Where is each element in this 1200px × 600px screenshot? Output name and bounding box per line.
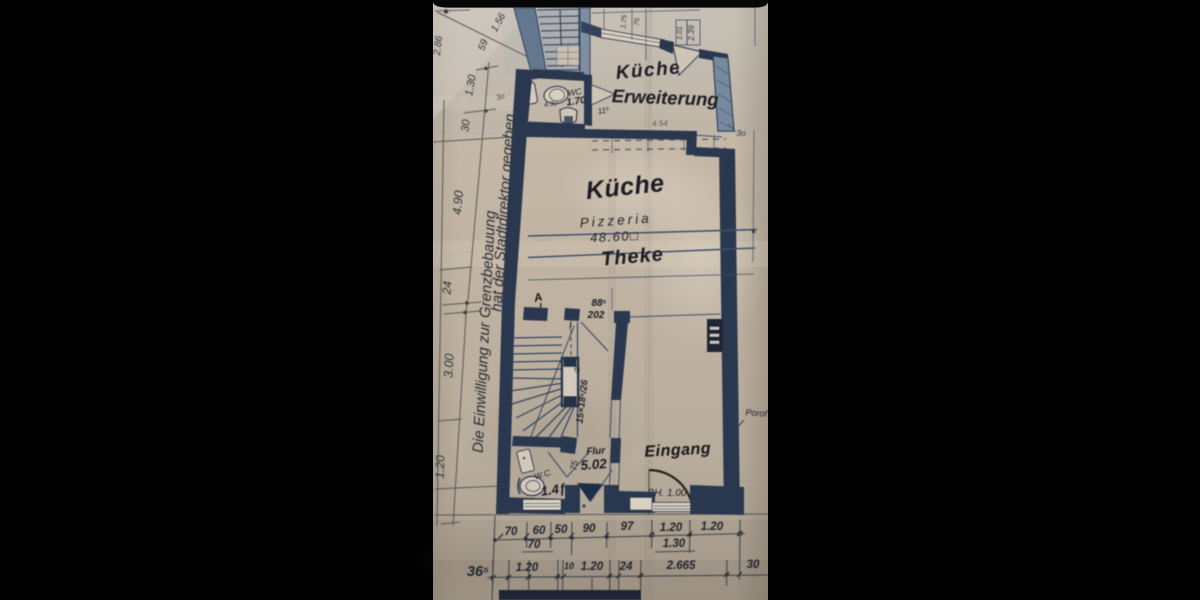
svg-text:2.39: 2.39: [687, 25, 696, 42]
svg-text:3.00: 3.00: [441, 353, 456, 378]
svg-text:1.20: 1.20: [516, 562, 539, 574]
svg-text:1.30: 1.30: [663, 538, 686, 550]
svg-text:1.20: 1.20: [701, 521, 724, 533]
svg-text:88⁵: 88⁵: [591, 298, 606, 309]
svg-text:1.20: 1.20: [581, 561, 604, 573]
svg-text:1.01: 1.01: [677, 26, 684, 40]
svg-text:3o: 3o: [736, 128, 746, 138]
svg-text:50: 50: [555, 524, 568, 536]
svg-text:24: 24: [619, 561, 633, 573]
svg-text:2.665: 2.665: [666, 560, 696, 572]
svg-text:48.60□: 48.60□: [590, 228, 640, 246]
svg-text:90: 90: [583, 523, 596, 535]
svg-text:1.20: 1.20: [433, 455, 448, 479]
svg-text:10: 10: [564, 561, 574, 571]
svg-text:4.54: 4.54: [652, 119, 669, 129]
svg-text:70: 70: [528, 539, 541, 551]
svg-text:24: 24: [439, 280, 454, 296]
svg-text:30: 30: [747, 559, 760, 571]
svg-text:4.90: 4.90: [450, 190, 466, 216]
svg-text:1.20: 1.20: [660, 522, 683, 534]
svg-text:36⁵: 36⁵: [467, 564, 489, 580]
svg-text:30: 30: [459, 118, 472, 132]
svg-text:Eingang: Eingang: [644, 440, 711, 460]
svg-text:97: 97: [621, 521, 634, 533]
svg-text:Erweiterung: Erweiterung: [611, 85, 719, 110]
svg-text:202: 202: [587, 310, 605, 321]
svg-text:70: 70: [505, 526, 518, 538]
svg-text:Porof: Porof: [745, 407, 769, 419]
svg-text:60: 60: [533, 525, 546, 537]
svg-text:75: 75: [634, 17, 642, 26]
svg-text:5.02: 5.02: [580, 456, 608, 473]
